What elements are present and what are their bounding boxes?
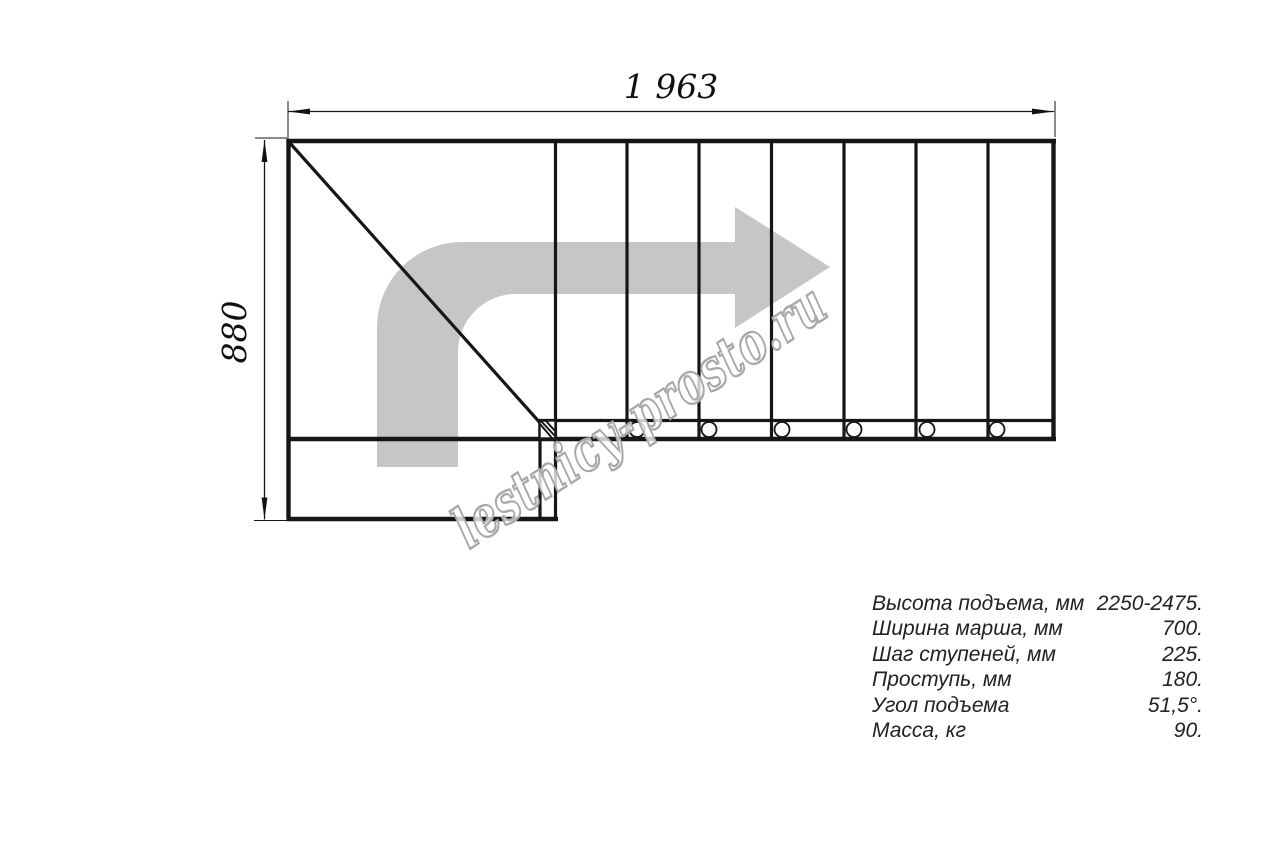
bolt-hole [775, 422, 790, 437]
site-watermark: lestnicy-prosto.ru [441, 271, 839, 562]
spec-row-climb-angle: Угол подъема 51,5°. [872, 693, 1203, 718]
spec-label: Угол подъема [872, 693, 1009, 718]
spec-row-flight-width: Ширина марша, мм 700. [872, 616, 1203, 641]
left-dimension: 880 [215, 138, 287, 521]
spec-label: Шаг ступеней, мм [872, 642, 1056, 667]
spec-value: 225. [1162, 642, 1203, 667]
spec-table: Высота подъема, мм 2250-2475. Ширина мар… [872, 591, 1203, 743]
spec-row-rise-height: Высота подъема, мм 2250-2475. [872, 591, 1203, 616]
spec-row-tread: Проступь, мм 180. [872, 667, 1203, 692]
spec-label: Масса, кг [872, 718, 966, 743]
spec-label: Проступь, мм [872, 667, 1012, 692]
spec-value: 90. [1174, 718, 1203, 743]
stair-drawing-page: 1 963 880 lestnicy-prosto.ru Высота подъ… [0, 0, 1280, 853]
spec-value: 700. [1162, 616, 1203, 641]
top-dimension-label: 1 963 [624, 67, 718, 106]
top-dimension: 1 963 [288, 67, 1055, 139]
left-dimension-label: 880 [215, 301, 254, 364]
bolt-hole [847, 422, 862, 437]
spec-value: 180. [1162, 667, 1203, 692]
bolt-hole [920, 422, 935, 437]
bolt-hole [990, 422, 1005, 437]
spec-value: 51,5°. [1148, 693, 1203, 718]
spec-value: 2250-2475. [1097, 591, 1203, 616]
spec-label: Ширина марша, мм [872, 616, 1063, 641]
spec-row-mass: Масса, кг 90. [872, 718, 1203, 743]
bolt-hole [702, 422, 717, 437]
spec-row-step-pitch: Шаг ступеней, мм 225. [872, 642, 1203, 667]
spec-label: Высота подъема, мм [872, 591, 1084, 616]
